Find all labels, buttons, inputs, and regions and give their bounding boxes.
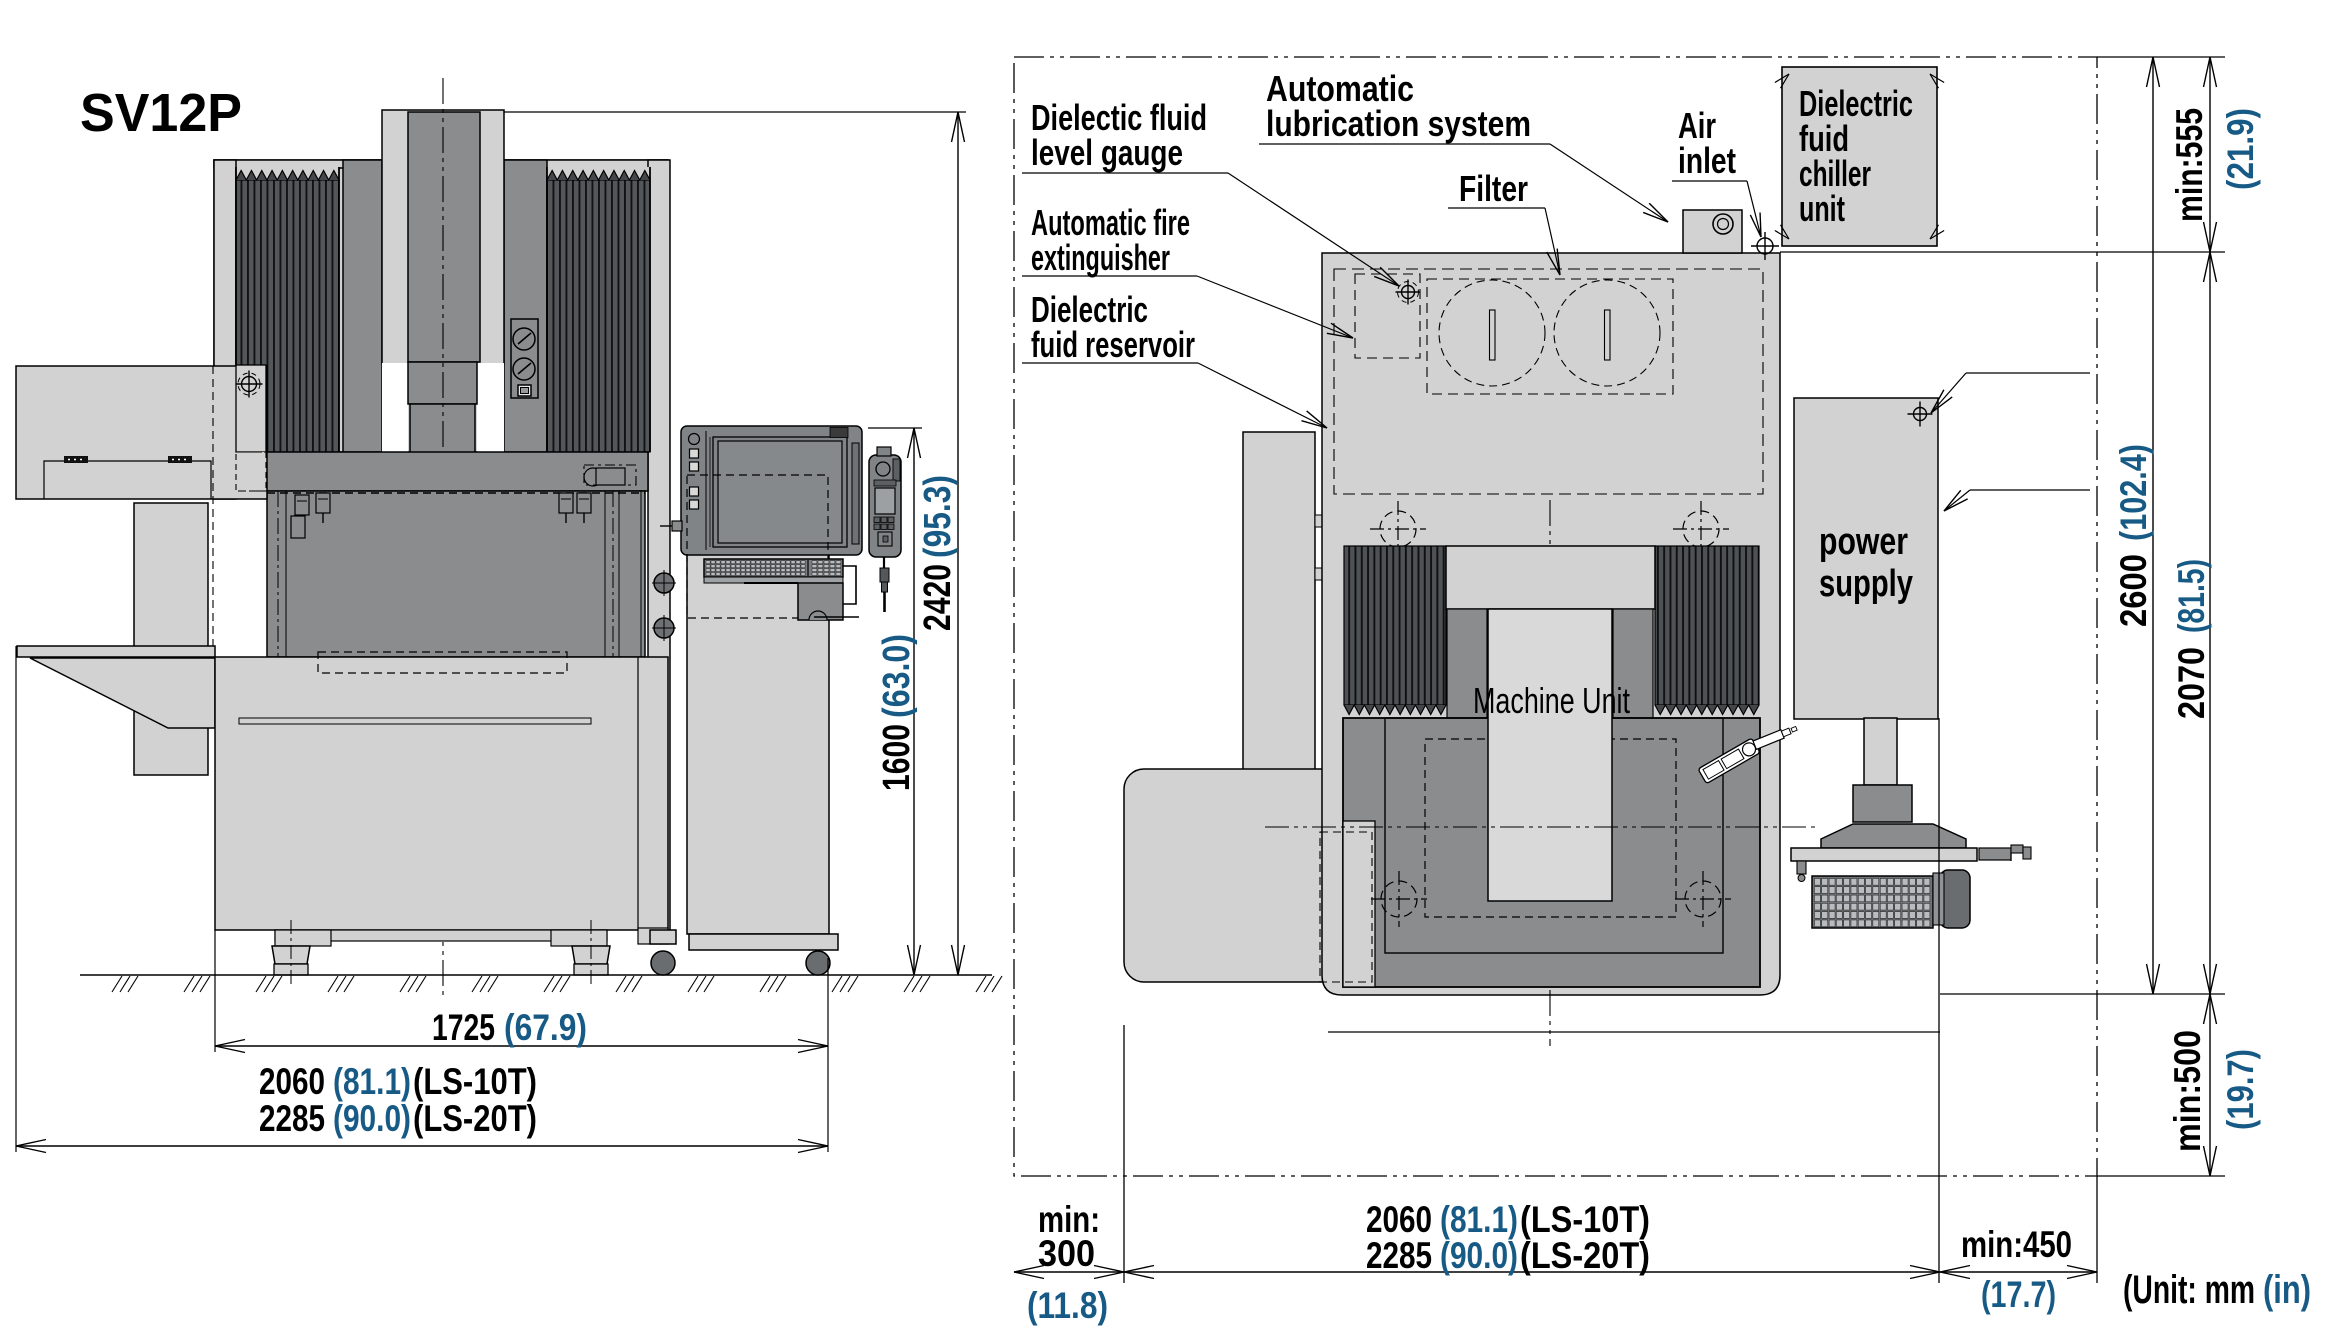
svg-text:2060: 2060 <box>259 1061 325 1102</box>
svg-text:(19.7): (19.7) <box>2220 1049 2261 1130</box>
svg-text:1725: 1725 <box>432 1007 495 1048</box>
svg-text:2060: 2060 <box>1366 1199 1432 1240</box>
svg-text:min:500: min:500 <box>2167 1030 2208 1152</box>
svg-text:(LS-20T): (LS-20T) <box>413 1098 537 1139</box>
svg-text:(LS-10T): (LS-10T) <box>1520 1199 1650 1240</box>
svg-text:(81.1): (81.1) <box>333 1061 411 1102</box>
svg-text:(102.4): (102.4) <box>2113 444 2154 541</box>
svg-text:(90.0): (90.0) <box>333 1098 411 1139</box>
svg-text:fuid reservoir: fuid reservoir <box>1031 324 1195 365</box>
svg-text:(in): (in) <box>2263 1268 2311 1312</box>
svg-text:(63.0): (63.0) <box>876 634 918 718</box>
svg-text:(67.9): (67.9) <box>504 1007 587 1048</box>
svg-text:2420: 2420 <box>917 564 959 631</box>
svg-text:Machine Unit: Machine Unit <box>1473 680 1630 721</box>
svg-text:(LS-20T): (LS-20T) <box>1520 1235 1650 1276</box>
svg-text:Filter: Filter <box>1459 168 1528 209</box>
svg-text:2285: 2285 <box>1366 1235 1432 1276</box>
svg-text:level gauge: level gauge <box>1031 132 1183 173</box>
svg-text:(LS-10T): (LS-10T) <box>413 1061 537 1102</box>
svg-text:lubrication system: lubrication system <box>1266 103 1531 144</box>
svg-text:min:555: min:555 <box>2169 108 2210 222</box>
svg-text:2285: 2285 <box>259 1098 325 1139</box>
svg-text:1600: 1600 <box>876 724 918 791</box>
svg-text:2600: 2600 <box>2113 554 2154 627</box>
svg-text:300: 300 <box>1038 1233 1095 1274</box>
svg-text:extinguisher: extinguisher <box>1031 237 1170 278</box>
svg-text:min:450: min:450 <box>1961 1224 2072 1265</box>
svg-text:2070: 2070 <box>2171 647 2212 719</box>
svg-text:unit: unit <box>1799 188 1845 229</box>
svg-text:(21.9): (21.9) <box>2220 108 2261 190</box>
svg-text:(11.8): (11.8) <box>1027 1285 1108 1326</box>
svg-text:SV12P: SV12P <box>80 83 242 143</box>
svg-text:(81.5): (81.5) <box>2171 559 2212 633</box>
svg-text:inlet: inlet <box>1678 140 1736 181</box>
svg-text:supply: supply <box>1819 563 1913 605</box>
svg-text:(Unit: mm: (Unit: mm <box>2123 1268 2255 1312</box>
svg-text:(81.1): (81.1) <box>1440 1199 1518 1240</box>
svg-text:(17.7): (17.7) <box>1981 1274 2056 1315</box>
svg-text:(95.3): (95.3) <box>917 475 959 558</box>
svg-text:(90.0): (90.0) <box>1440 1235 1518 1276</box>
svg-text:power: power <box>1819 521 1908 563</box>
